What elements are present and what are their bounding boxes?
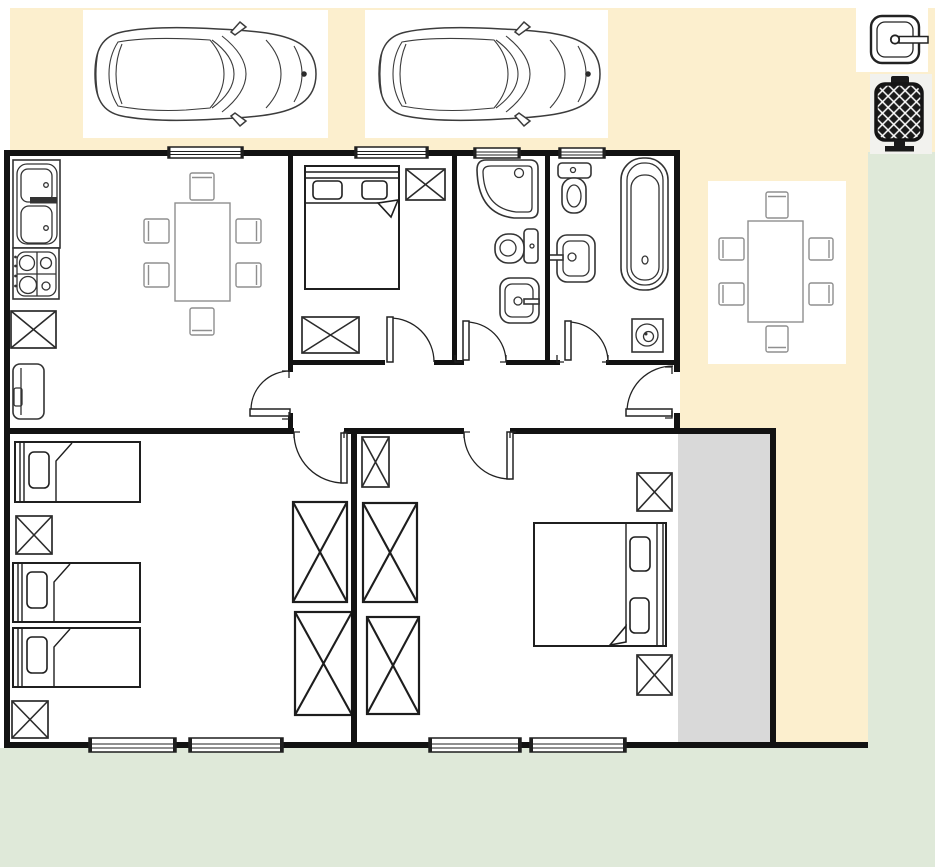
- window[interactable]: [189, 738, 283, 752]
- kitchen-cabinet-x[interactable]: [11, 311, 56, 348]
- chair[interactable]: [809, 283, 833, 305]
- sink-icon[interactable]: [871, 16, 928, 63]
- bathtub[interactable]: [621, 158, 668, 290]
- chair[interactable]: [236, 219, 261, 243]
- cabinet-x[interactable]: [362, 437, 389, 487]
- wardrobe-x[interactable]: [293, 502, 347, 602]
- single-bed-3[interactable]: [13, 628, 140, 687]
- nightstand-x[interactable]: [16, 516, 52, 554]
- window[interactable]: [559, 148, 605, 158]
- refrigerator[interactable]: [13, 364, 44, 419]
- single-bed-2[interactable]: [13, 563, 140, 622]
- toilet[interactable]: [558, 163, 591, 213]
- balcony-floor: [678, 432, 772, 744]
- wardrobe-x[interactable]: [295, 612, 352, 715]
- gas-stove[interactable]: [13, 248, 59, 299]
- washbasin[interactable]: [500, 278, 539, 323]
- nightstand-x[interactable]: [12, 701, 48, 738]
- window[interactable]: [355, 147, 428, 158]
- chair[interactable]: [719, 283, 744, 305]
- chair[interactable]: [190, 173, 214, 200]
- nightstand-x[interactable]: [637, 655, 672, 695]
- window[interactable]: [429, 738, 521, 752]
- cabinet-x[interactable]: [406, 169, 445, 200]
- floor-plan-canvas: [0, 0, 935, 867]
- kitchen-sink-counter[interactable]: [13, 160, 60, 248]
- grill-icon[interactable]: [876, 76, 922, 152]
- garden-area-bottom: [0, 748, 935, 867]
- chair[interactable]: [809, 238, 833, 260]
- chair[interactable]: [719, 238, 744, 260]
- chair[interactable]: [766, 326, 788, 352]
- window[interactable]: [530, 738, 626, 752]
- chair[interactable]: [236, 263, 261, 287]
- chair[interactable]: [190, 308, 214, 335]
- window[interactable]: [474, 148, 520, 158]
- single-bed-1[interactable]: [15, 442, 140, 502]
- car-2[interactable]: [379, 22, 600, 126]
- double-bed-bottom[interactable]: [534, 523, 666, 646]
- wardrobe-x[interactable]: [367, 617, 419, 714]
- washer-floor-drain[interactable]: [632, 319, 663, 352]
- car-1[interactable]: [95, 22, 316, 126]
- window[interactable]: [89, 738, 176, 752]
- window[interactable]: [168, 147, 243, 158]
- chair[interactable]: [144, 263, 169, 287]
- chair[interactable]: [144, 219, 169, 243]
- double-bed-top[interactable]: [305, 166, 399, 289]
- wardrobe-x[interactable]: [363, 503, 417, 602]
- nightstand-x[interactable]: [637, 473, 672, 511]
- chair[interactable]: [766, 192, 788, 218]
- cabinet-x[interactable]: [302, 317, 359, 353]
